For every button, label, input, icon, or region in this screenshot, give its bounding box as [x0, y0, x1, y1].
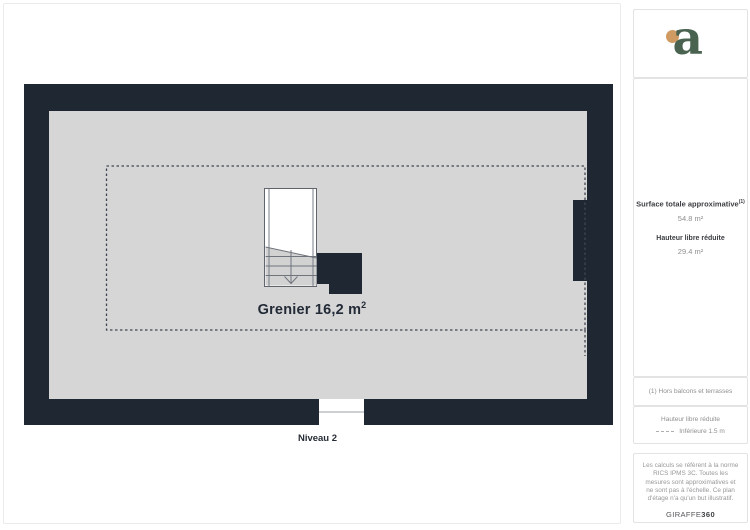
stairwell-solid-block [316, 253, 362, 284]
window [319, 399, 364, 425]
legend-row: Inférieure 1.5 m [656, 428, 725, 435]
surface-total-title: Surface totale approximative(1) [636, 199, 745, 209]
surface-total-value: 54.8 m² [678, 214, 703, 223]
level-label: Niveau 2 [270, 433, 365, 444]
footnote-text: (1) Hors balcons et terrasses [649, 388, 732, 395]
brand-suffix: 360 [701, 510, 715, 519]
logo-panel: a [633, 9, 748, 78]
surface-total-title-text: Surface totale approximative [636, 200, 739, 209]
legend-item-label: Inférieure 1.5 m [679, 428, 725, 435]
brand-name: GIRAFFE [666, 510, 701, 519]
legal-disclaimer-text: Les calculs se réfèrent à la norme RICS … [641, 462, 740, 504]
logo-letter: a [673, 9, 703, 69]
room-area-text: Grenier 16,2 m [258, 302, 362, 318]
reduced-height-value: 29.4 m² [678, 247, 703, 256]
stairwell-solid-block [329, 283, 362, 294]
legend-title: Hauteur libre réduite [661, 416, 720, 423]
staircase [264, 188, 317, 287]
brand-wordmark: GIRAFFE360 [641, 510, 740, 519]
reduced-height-title: Hauteur libre réduite [656, 235, 724, 242]
room-area-exponent: 2 [361, 300, 366, 310]
footnote-panel: (1) Hors balcons et terrasses [633, 377, 748, 406]
surface-summary-panel: Surface totale approximative(1) 54.8 m² … [633, 78, 748, 377]
giraffe360-logo-icon: a [665, 18, 717, 70]
legend-panel: Hauteur libre réduite Inférieure 1.5 m [633, 406, 748, 444]
wall-pilaster [573, 200, 587, 281]
room-area-label: Grenier 16,2 m2 [212, 300, 412, 318]
legal-panel: Les calculs se réfèrent à la norme RICS … [633, 453, 748, 523]
surface-total-footnote-mark: (1) [739, 199, 745, 205]
dashed-line-icon [656, 431, 674, 432]
